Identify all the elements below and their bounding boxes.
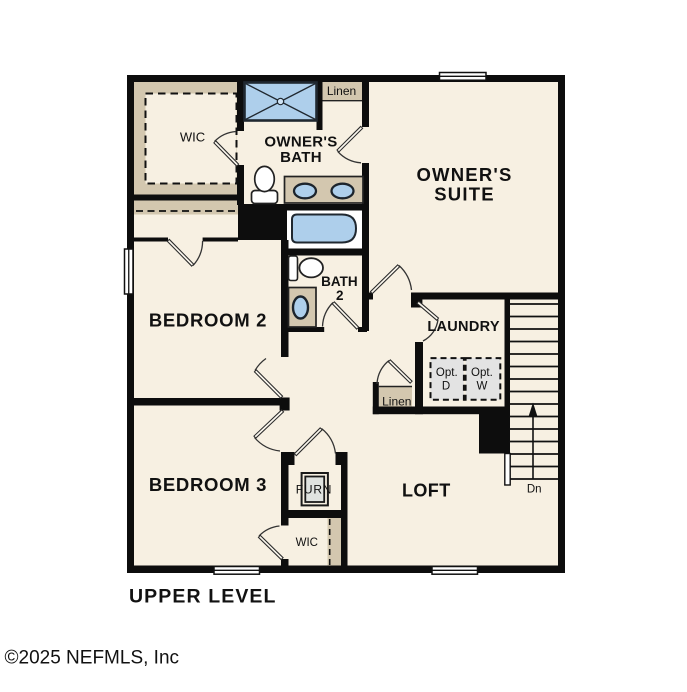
svg-text:Linen: Linen bbox=[327, 84, 356, 98]
svg-text:2: 2 bbox=[336, 288, 344, 303]
svg-text:OWNER'S: OWNER'S bbox=[264, 133, 337, 150]
svg-text:LOFT: LOFT bbox=[402, 480, 451, 500]
svg-text:UPPER LEVEL: UPPER LEVEL bbox=[129, 585, 277, 607]
svg-text:BATH: BATH bbox=[321, 274, 358, 289]
svg-text:LAUNDRY: LAUNDRY bbox=[427, 319, 499, 335]
svg-text:FURN: FURN bbox=[296, 483, 333, 497]
svg-text:D: D bbox=[442, 381, 450, 393]
svg-text:Opt.: Opt. bbox=[471, 367, 493, 379]
svg-text:W: W bbox=[476, 381, 487, 393]
svg-text:BEDROOM 3: BEDROOM 3 bbox=[149, 474, 267, 495]
svg-text:Dn: Dn bbox=[527, 484, 542, 496]
svg-text:Opt.: Opt. bbox=[436, 367, 458, 379]
svg-text:Linen: Linen bbox=[382, 395, 411, 409]
svg-text:BEDROOM 2: BEDROOM 2 bbox=[149, 310, 267, 331]
svg-text:BATH: BATH bbox=[280, 149, 322, 166]
svg-text:OWNER'S: OWNER'S bbox=[416, 164, 512, 185]
svg-text:WIC: WIC bbox=[296, 537, 318, 549]
svg-text:WIC: WIC bbox=[180, 130, 205, 145]
svg-text:SUITE: SUITE bbox=[434, 184, 494, 205]
svg-text:©2025 NEFMLS, Inc: ©2025 NEFMLS, Inc bbox=[5, 648, 180, 669]
